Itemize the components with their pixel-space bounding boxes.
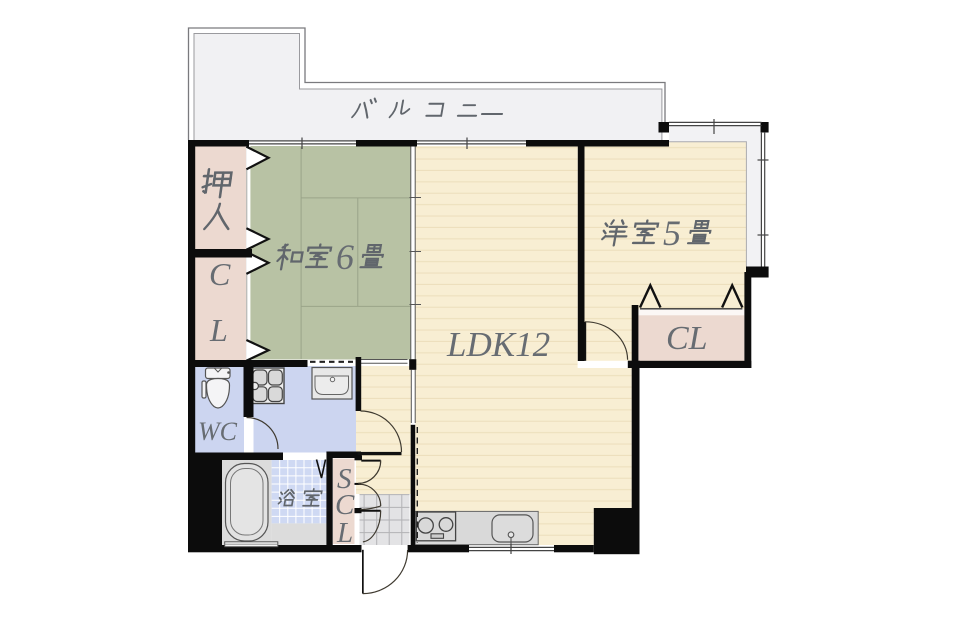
svg-text:L: L	[336, 517, 353, 549]
svg-text:C: C	[209, 256, 231, 292]
svg-text:CL: CL	[666, 320, 708, 357]
svg-text:L: L	[209, 312, 228, 348]
svg-text:WC: WC	[198, 417, 238, 446]
svg-text:LDK12: LDK12	[446, 325, 550, 364]
svg-text:6: 6	[336, 237, 354, 277]
svg-text:5: 5	[663, 213, 681, 253]
